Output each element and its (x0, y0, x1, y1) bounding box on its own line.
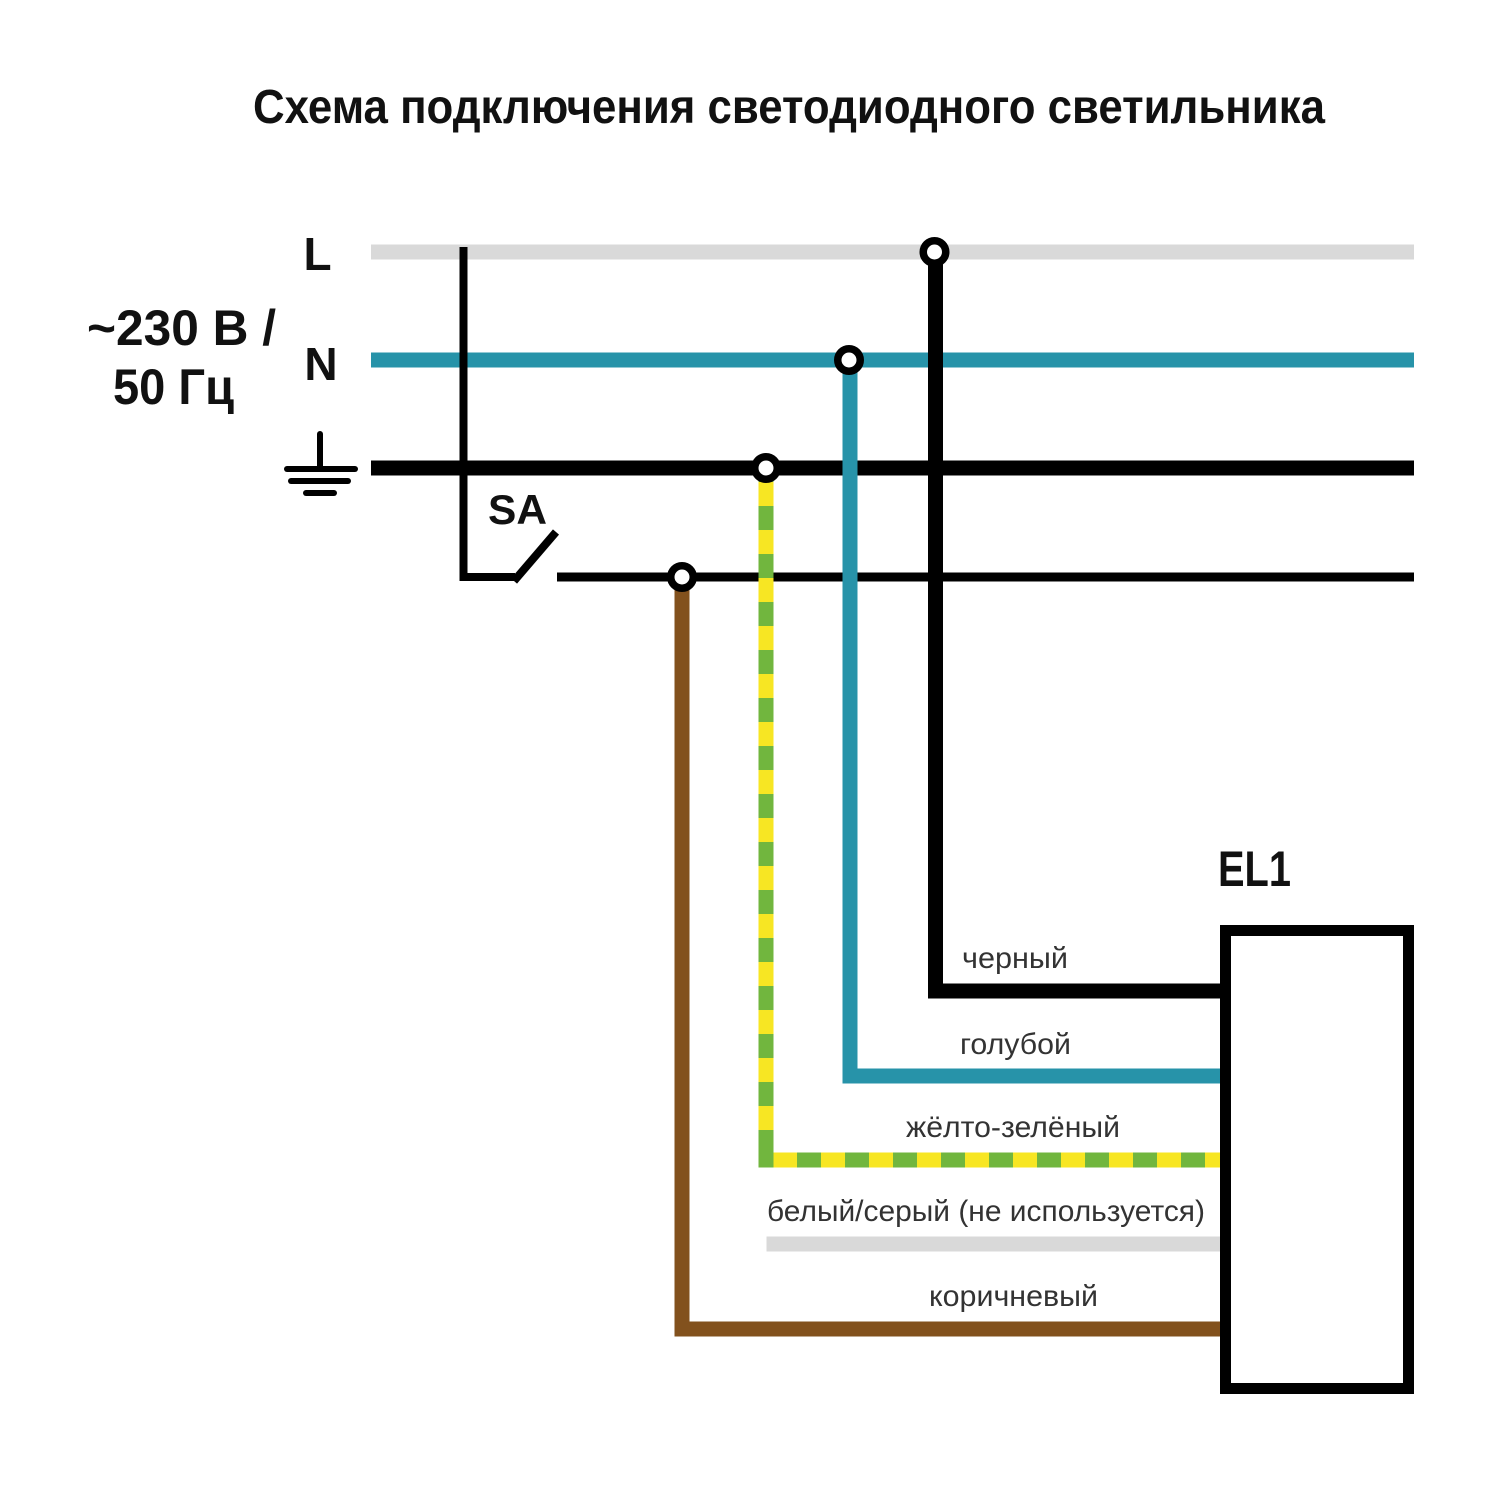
svg-text:50 Гц: 50 Гц (113, 359, 234, 415)
svg-text:L: L (303, 228, 331, 280)
svg-text:~230 В /: ~230 В / (87, 300, 276, 356)
svg-text:черный: черный (962, 942, 1068, 975)
svg-text:коричневый: коричневый (929, 1280, 1098, 1313)
svg-text:Схема подключения светодиодног: Схема подключения светодиодного светильн… (253, 81, 1325, 134)
svg-text:N: N (304, 338, 337, 390)
svg-text:голубой: голубой (960, 1028, 1071, 1061)
svg-text:EL1: EL1 (1218, 841, 1291, 897)
svg-text:SA: SA (488, 486, 547, 533)
svg-text:белый/серый (не используется): белый/серый (не используется) (767, 1195, 1205, 1228)
svg-text:жёлто-зелёный: жёлто-зелёный (906, 1111, 1120, 1144)
